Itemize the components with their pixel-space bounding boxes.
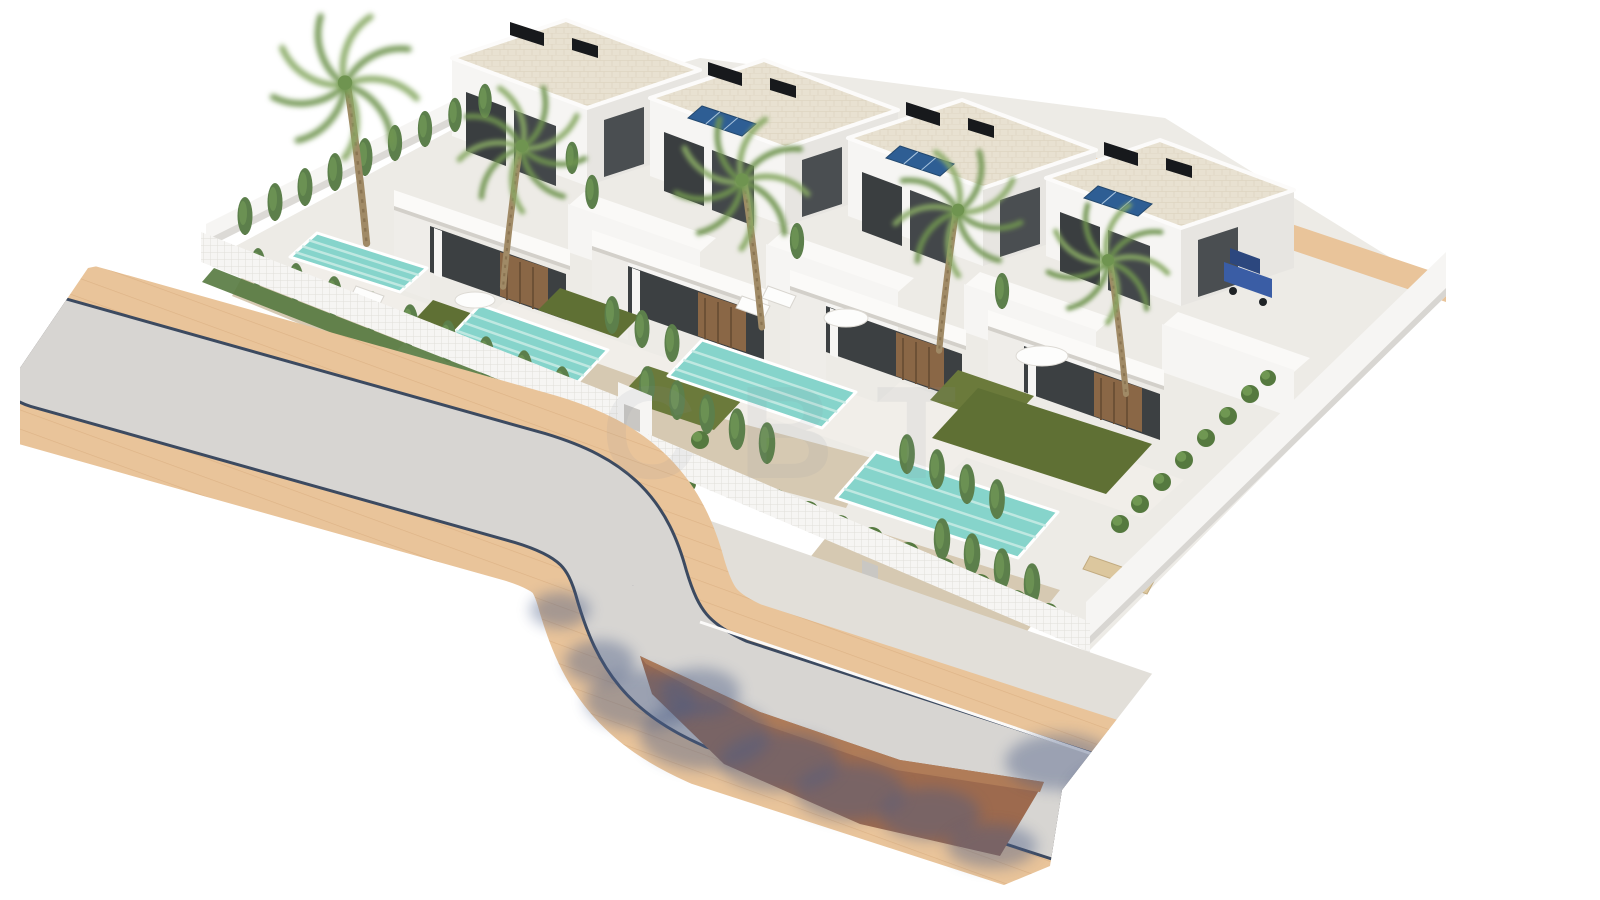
palm-crown bbox=[952, 204, 965, 217]
car-wheel bbox=[1229, 287, 1237, 295]
shrub bbox=[1260, 370, 1276, 386]
architectural-render-canvas: CBT bbox=[0, 0, 1600, 900]
cypress-tree bbox=[995, 273, 1009, 309]
cypress-highlight bbox=[269, 187, 277, 211]
cypress-tree bbox=[605, 296, 620, 334]
shrub-highlight bbox=[1176, 452, 1186, 462]
cypress-tree bbox=[328, 153, 343, 191]
car-wheel bbox=[1259, 298, 1267, 306]
shrub-highlight bbox=[1154, 474, 1164, 484]
tree-shadow bbox=[565, 640, 635, 684]
palm-crown bbox=[1102, 254, 1114, 266]
shrub bbox=[1153, 473, 1171, 491]
cypress-highlight bbox=[587, 178, 594, 200]
cypress-tree bbox=[238, 197, 253, 235]
cypress-highlight bbox=[480, 87, 487, 109]
tree-shadow bbox=[660, 668, 740, 716]
outdoor-sofa bbox=[824, 309, 868, 327]
cypress-highlight bbox=[996, 277, 1004, 300]
shrub bbox=[1175, 451, 1193, 469]
cypress-tree bbox=[298, 168, 313, 206]
cypress-tree bbox=[790, 223, 804, 259]
cypress-tree bbox=[635, 310, 650, 348]
shrub bbox=[1197, 429, 1215, 447]
cypress-highlight bbox=[299, 172, 307, 196]
cypress-highlight bbox=[450, 101, 457, 123]
cypress-highlight bbox=[995, 553, 1004, 579]
cypress-highlight bbox=[666, 328, 674, 352]
cypress-tree bbox=[964, 533, 981, 575]
cypress-tree bbox=[566, 142, 579, 174]
cypress-tree bbox=[448, 98, 462, 132]
cypress-tree bbox=[478, 84, 492, 118]
cypress-tree bbox=[418, 111, 432, 147]
shrub bbox=[1241, 385, 1259, 403]
cypress-highlight bbox=[636, 314, 644, 338]
palm-crown bbox=[735, 173, 748, 186]
outdoor-sofa bbox=[1016, 346, 1068, 366]
cypress-highlight bbox=[935, 523, 944, 549]
shrub-highlight bbox=[1242, 386, 1252, 396]
shrub-highlight bbox=[1112, 516, 1122, 526]
cypress-tree bbox=[934, 518, 951, 560]
cypress-tree bbox=[268, 183, 283, 221]
shrub bbox=[1219, 407, 1237, 425]
palm-crown bbox=[338, 75, 352, 89]
cypress-highlight bbox=[239, 201, 247, 225]
shrub-highlight bbox=[1198, 430, 1208, 440]
cypress-highlight bbox=[1025, 568, 1034, 594]
shrub-highlight bbox=[1220, 408, 1230, 418]
cypress-tree bbox=[585, 175, 599, 209]
shrub-highlight bbox=[1261, 371, 1270, 380]
cypress-highlight bbox=[791, 227, 799, 250]
cypress-highlight bbox=[419, 115, 427, 138]
cypress-highlight bbox=[965, 538, 974, 564]
cypress-highlight bbox=[606, 300, 614, 324]
palm-crown bbox=[516, 140, 529, 153]
outdoor-sofa bbox=[455, 292, 495, 308]
shrub bbox=[1131, 495, 1149, 513]
tree-shadow bbox=[530, 592, 590, 628]
cypress-highlight bbox=[329, 157, 337, 181]
shrub bbox=[1111, 515, 1129, 533]
tree-shadow bbox=[947, 824, 1037, 868]
watermark: CBT bbox=[601, 359, 998, 506]
residential-development-render: CBT bbox=[0, 0, 1600, 900]
shrub-highlight bbox=[1132, 496, 1142, 506]
cypress-tree bbox=[665, 324, 680, 362]
